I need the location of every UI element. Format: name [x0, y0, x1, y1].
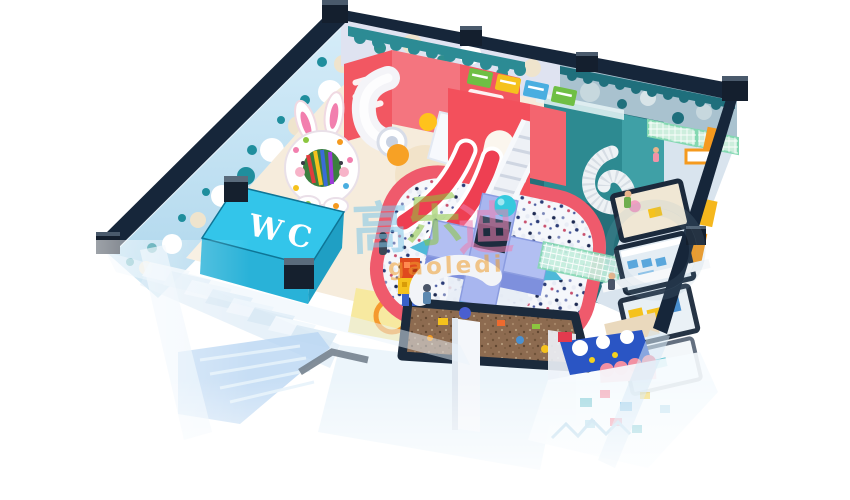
bunny-cheek-right — [339, 167, 349, 177]
bunny-eye-left — [301, 161, 305, 165]
figure-kid-pink — [653, 147, 659, 162]
figure-on-rim — [423, 284, 431, 304]
watermark-char-1: 高 — [351, 196, 409, 263]
watermark-char-2: 乐 — [405, 188, 463, 255]
watermark-latin: gaoledi — [388, 251, 505, 281]
playground-scene: WC — [0, 0, 850, 500]
figure-kid-green — [624, 191, 632, 209]
foot-dot-b — [333, 203, 339, 209]
left-fade — [0, 240, 250, 500]
playground-render: WC — [0, 0, 850, 500]
bunny-eye-right — [339, 161, 343, 165]
bunny-cheek-left — [295, 167, 305, 177]
tower-wing — [530, 104, 566, 186]
